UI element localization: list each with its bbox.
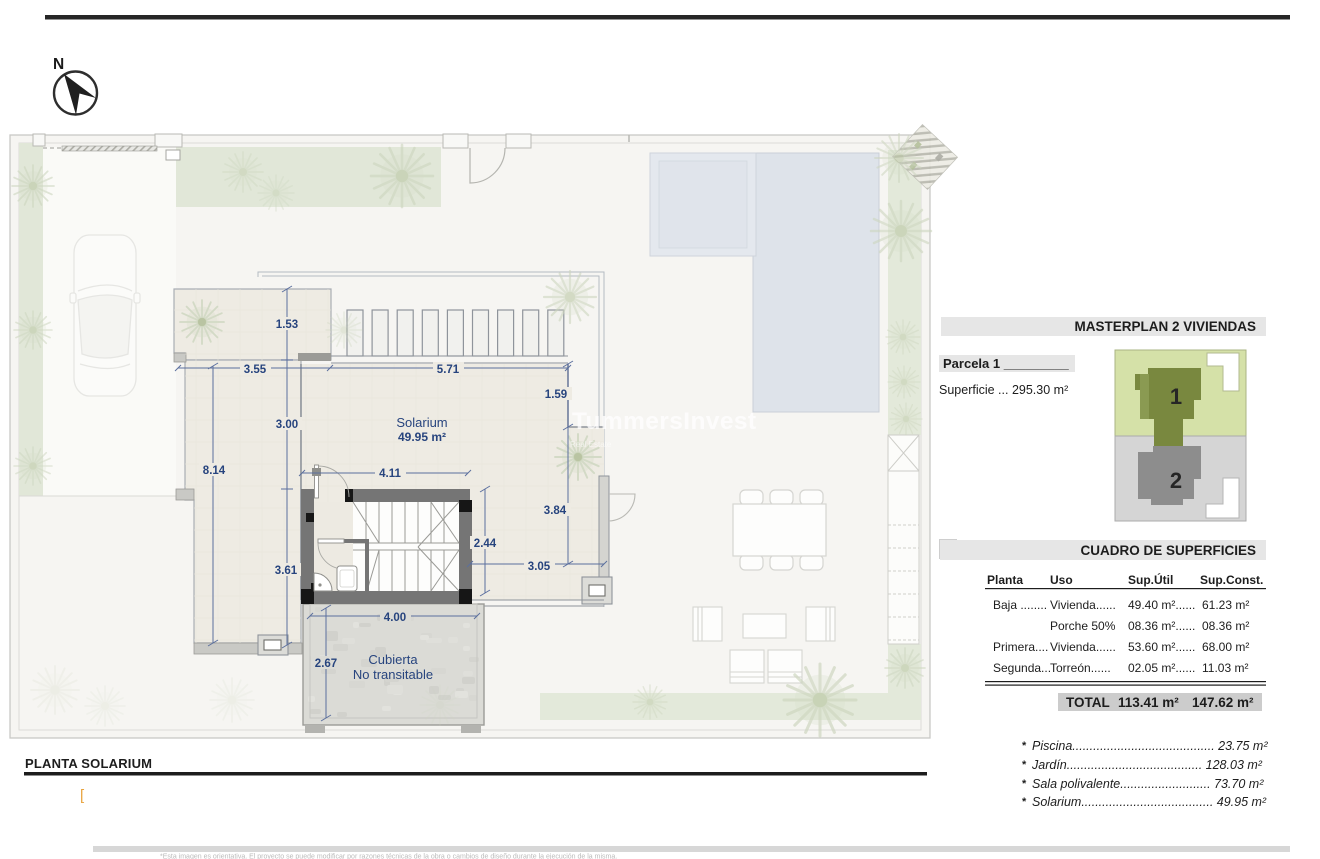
svg-text:4.11: 4.11	[379, 468, 401, 480]
svg-text:3.84: 3.84	[544, 505, 567, 517]
svg-text:Superficie ... 295.30 m²: Superficie ... 295.30 m²	[939, 383, 1068, 397]
svg-text:Sup.Const.: Sup.Const.	[1200, 573, 1263, 587]
svg-text:53.60 m²......: 53.60 m²......	[1128, 640, 1195, 654]
svg-text:CUADRO DE SUPERFICIES: CUADRO DE SUPERFICIES	[1080, 543, 1256, 558]
svg-text:113.41 m²: 113.41 m²	[1118, 695, 1179, 710]
svg-text:3.55: 3.55	[244, 364, 267, 376]
svg-text:Solarium: Solarium	[396, 415, 447, 430]
svg-text:*: *	[1022, 759, 1027, 771]
svg-text:Piscina.......................: Piscina.................................…	[1032, 739, 1268, 753]
svg-text:2.44: 2.44	[474, 538, 497, 550]
svg-text:Parcela 1 _________: Parcela 1 _________	[943, 356, 1070, 371]
svg-text:1.59: 1.59	[545, 389, 567, 401]
svg-text:68.00 m²: 68.00 m²	[1202, 640, 1249, 654]
svg-text:Planta: Planta	[987, 573, 1023, 587]
svg-text:Sup.Útil: Sup.Útil	[1128, 572, 1173, 587]
svg-text:08.36 m²......: 08.36 m²......	[1128, 619, 1195, 633]
svg-text:147.62 m²: 147.62 m²	[1192, 695, 1254, 710]
svg-text:Vivienda......: Vivienda......	[1050, 598, 1116, 612]
svg-text:2.67: 2.67	[315, 658, 337, 670]
svg-text:*: *	[1022, 796, 1027, 808]
svg-text:3.05: 3.05	[528, 561, 551, 573]
svg-text:*Esta imagen es orientativa. E: *Esta imagen es orientativa. El proyecto…	[160, 854, 617, 859]
svg-text:Sala polivalente..............: Sala polivalente........................…	[1032, 777, 1264, 791]
svg-text:TummersInvest: TummersInvest	[572, 408, 756, 435]
svg-text:No transitable: No transitable	[353, 667, 433, 682]
svg-text:Segunda...: Segunda...	[993, 661, 1051, 675]
svg-text:5.71: 5.71	[437, 364, 460, 376]
svg-text:*: *	[1022, 778, 1027, 790]
svg-text:8.14: 8.14	[203, 465, 226, 477]
svg-text:Real Estate: Real Estate	[570, 440, 612, 449]
svg-text:TOTAL: TOTAL	[1066, 695, 1110, 710]
svg-text:1.53: 1.53	[276, 319, 298, 331]
svg-text:Porche 50%: Porche 50%	[1050, 619, 1116, 633]
svg-text:Uso: Uso	[1050, 573, 1073, 587]
svg-text:61.23 m²: 61.23 m²	[1202, 598, 1249, 612]
svg-text:Jardín........................: Jardín..................................…	[1031, 758, 1263, 772]
svg-text:08.36 m²: 08.36 m²	[1202, 619, 1249, 633]
svg-text:49.95 m²: 49.95 m²	[398, 430, 446, 444]
svg-text:49.40 m²......: 49.40 m²......	[1128, 598, 1195, 612]
svg-text:Solarium......................: Solarium................................…	[1032, 795, 1267, 809]
svg-text:N: N	[53, 56, 64, 73]
svg-text:4.00: 4.00	[384, 612, 406, 624]
svg-text:1: 1	[1170, 384, 1182, 409]
svg-text:Cubierta: Cubierta	[368, 652, 418, 667]
svg-text:3.00: 3.00	[276, 419, 298, 431]
svg-text:MASTERPLAN 2 VIVIENDAS: MASTERPLAN 2 VIVIENDAS	[1074, 319, 1256, 334]
svg-text:Torreón......: Torreón......	[1050, 661, 1111, 675]
svg-text:02.05 m²......: 02.05 m²......	[1128, 661, 1195, 675]
svg-text:Vivienda......: Vivienda......	[1050, 640, 1116, 654]
svg-text:Primera....: Primera....	[993, 640, 1048, 654]
svg-text:Baja ........: Baja ........	[993, 598, 1047, 612]
svg-text:*: *	[1022, 740, 1027, 752]
svg-text:11.03 m²: 11.03 m²	[1202, 661, 1248, 675]
svg-text:2: 2	[1170, 468, 1182, 493]
svg-text:PLANTA SOLARIUM: PLANTA SOLARIUM	[25, 756, 152, 771]
svg-text:3.61: 3.61	[275, 565, 298, 577]
